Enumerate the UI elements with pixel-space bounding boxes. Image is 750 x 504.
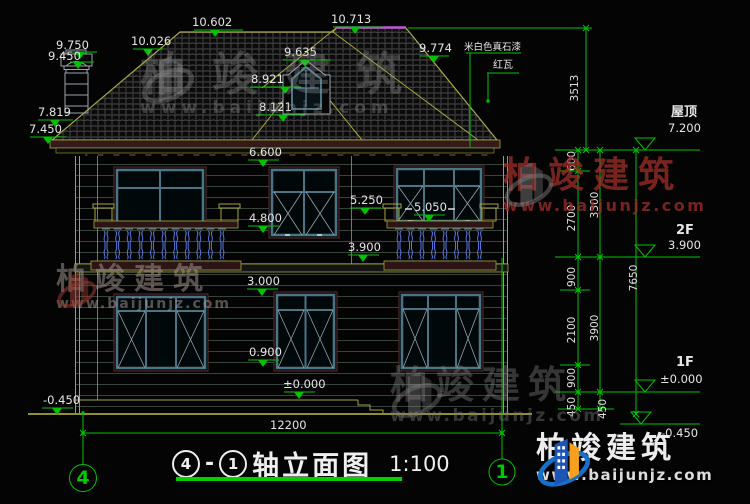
elev-grade-left: -0.450	[43, 394, 80, 407]
elev-dormer-mid: 8.921	[251, 73, 284, 86]
window-1f-left	[114, 294, 208, 371]
dim-2100: 2100	[566, 317, 578, 344]
dim-total-width: 12200	[270, 419, 307, 432]
dim-7650: 7650	[628, 265, 640, 292]
title-scale: 1:100	[389, 452, 450, 476]
elev-chimney-cap: 9.450	[48, 50, 81, 63]
floor-label-2f: 2F	[676, 224, 694, 237]
floor-label-1f: 1F	[676, 356, 694, 369]
elev-roof-break-right: 9.774	[419, 42, 452, 55]
elev-ridge-right: 10.713	[331, 13, 371, 26]
note-roof-tile: 红瓦	[493, 59, 513, 72]
window-2f-left	[114, 167, 206, 225]
dim-3513: 3513	[569, 75, 581, 102]
cad-elevation-drawing: 9.750 9.450 10.026 10.602 10.713 9.635 8…	[0, 0, 750, 504]
note-wall-finish: 米白色真石漆	[464, 41, 521, 54]
elev-eave-bottom: 7.450	[29, 123, 62, 136]
level-2f: 3.900	[668, 239, 701, 252]
elev-5050: 5.050	[414, 201, 447, 214]
dim-450a: 450	[566, 397, 578, 417]
window-2f-center	[269, 167, 339, 238]
dim-450b: 450	[597, 399, 609, 419]
dim-2700: 2700	[566, 205, 578, 232]
dim-3300: 3300	[589, 192, 601, 219]
title-axis-to: 1	[219, 450, 247, 478]
elev-ridge-left: 10.602	[192, 16, 232, 29]
dim-600: 600	[566, 151, 578, 171]
window-1f-center	[274, 292, 337, 371]
level-roof: 7.200	[668, 122, 701, 135]
elev-4800: 4.800	[249, 212, 282, 225]
elev-3000: 3.000	[247, 275, 280, 288]
axis-number-right: 1	[495, 461, 508, 483]
dim-900b: 900	[566, 368, 578, 388]
elev-eave-top: 7.819	[38, 106, 71, 119]
elev-6600: 6.600	[249, 146, 282, 159]
window-1f-right	[399, 292, 483, 371]
elev-0000: ±0.000	[283, 378, 326, 391]
elev-roof-break-left: 10.026	[131, 35, 171, 48]
elev-5250: 5.250	[350, 194, 383, 207]
dim-3900: 3900	[589, 315, 601, 342]
title-axis-from: 4	[172, 450, 200, 478]
elev-dormer-peak: 9.635	[284, 46, 317, 59]
elev-dormer-sill: 8.121	[259, 101, 292, 114]
level-grade-right: -0.450	[661, 427, 698, 440]
elev-3900: 3.900	[348, 241, 381, 254]
axis-number-left: 4	[76, 467, 89, 489]
floor-label-roof: 屋顶	[671, 106, 697, 119]
title-underline	[176, 477, 402, 481]
title-separator: -	[205, 451, 214, 476]
elev-0900: 0.900	[249, 346, 282, 359]
dim-900a: 900	[566, 267, 578, 287]
level-1f: ±0.000	[660, 373, 703, 386]
